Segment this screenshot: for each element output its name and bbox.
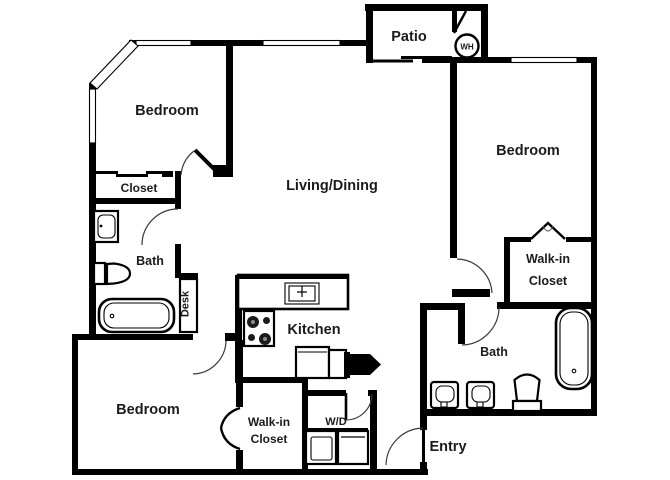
bathtub-icon xyxy=(99,299,174,332)
sink-icon xyxy=(431,382,458,408)
laundry-label: W/D xyxy=(325,416,346,428)
window xyxy=(90,89,96,143)
walk-in-closet-right-label-line1: Walk-in xyxy=(526,252,570,266)
door-arc xyxy=(386,428,423,465)
door-arc xyxy=(346,394,372,420)
window xyxy=(263,41,340,46)
door-leaf xyxy=(458,303,465,344)
door-arc xyxy=(457,259,492,293)
door-arc xyxy=(462,307,499,345)
bedroom-bottom-label: Bedroom xyxy=(116,402,180,418)
water-heater-label: WH xyxy=(460,43,474,52)
desk-label: Desk xyxy=(180,290,192,317)
refrigerator-icon xyxy=(296,347,350,378)
sliding-door xyxy=(116,174,148,177)
sliding-door xyxy=(373,60,413,63)
sink-icon xyxy=(94,211,118,242)
windows xyxy=(90,40,578,143)
door-leaf xyxy=(195,150,215,170)
door-leaf xyxy=(452,289,490,297)
living-dining-label: Living/Dining xyxy=(286,178,378,194)
walk-in-closet-bottom-label-line2: Closet xyxy=(251,432,288,446)
toilet-icon xyxy=(513,375,541,412)
bathtub-icon xyxy=(556,308,592,389)
window xyxy=(136,41,191,46)
window xyxy=(511,58,577,63)
bedroom-right-label: Bedroom xyxy=(496,143,560,159)
entry-label: Entry xyxy=(429,439,466,455)
door-arc xyxy=(181,151,194,175)
bedroom-top-left-label: Bedroom xyxy=(135,103,199,119)
floor-plan: WH Bedroom Closet Bath Desk Living/Dinin… xyxy=(0,0,670,480)
window-corner xyxy=(90,40,138,89)
walk-in-closet-right-label-line2: Closet xyxy=(529,274,568,288)
toilet-icon xyxy=(94,263,130,284)
sliding-door xyxy=(401,56,452,59)
floor-plan-page: WH Bedroom Closet Bath Desk Living/Dinin… xyxy=(0,0,670,480)
closet-top-left-label: Closet xyxy=(121,181,158,195)
kitchen-label: Kitchen xyxy=(287,322,340,338)
sliding-door xyxy=(96,171,118,174)
dryer-icon xyxy=(338,431,368,464)
walk-in-closet-bottom-label-line1: Walk-in xyxy=(248,415,290,429)
bath-left-label: Bath xyxy=(136,254,164,268)
double-door xyxy=(221,428,240,449)
double-door xyxy=(221,408,240,428)
water-heater-icon: WH xyxy=(456,35,479,58)
patio-label: Patio xyxy=(391,29,427,45)
sliding-door xyxy=(146,171,162,174)
door-arc xyxy=(193,341,226,374)
bath-right-label: Bath xyxy=(480,345,508,359)
sink-icon xyxy=(467,382,494,408)
door-arc xyxy=(142,209,178,245)
stove-icon xyxy=(244,311,274,346)
